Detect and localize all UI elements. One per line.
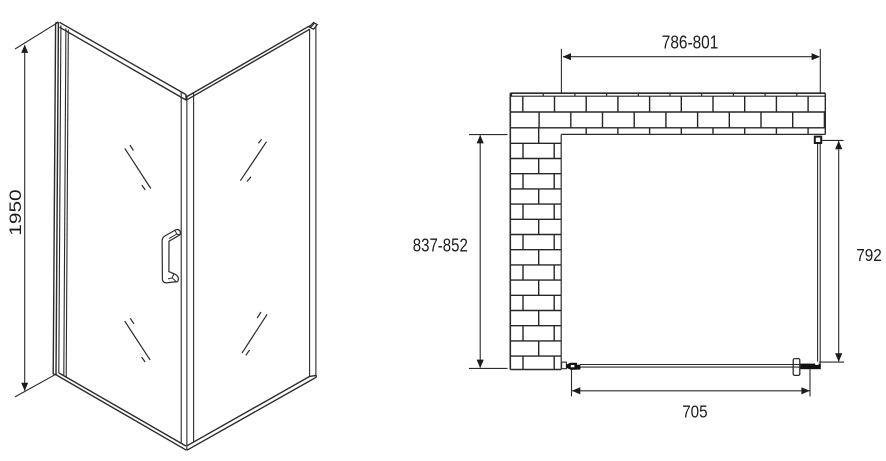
svg-text:705: 705 [682,402,707,422]
svg-text:792: 792 [856,245,882,265]
svg-text:837-852: 837-852 [413,236,468,256]
svg-text:1950: 1950 [6,189,25,236]
svg-text:786-801: 786-801 [662,33,719,53]
